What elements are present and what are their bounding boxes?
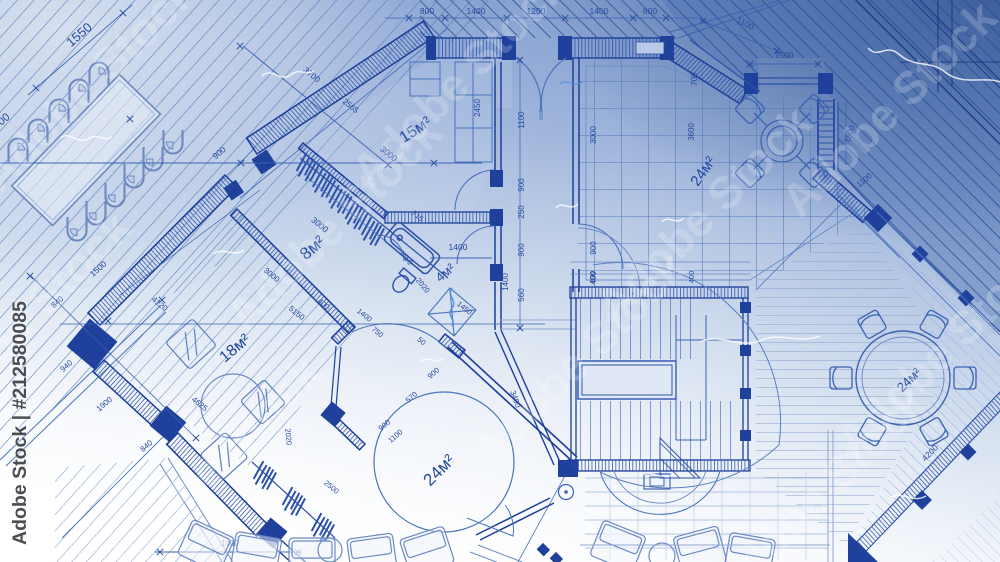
svg-text:1400: 1400 — [467, 6, 486, 16]
svg-text:700: 700 — [690, 72, 699, 86]
svg-text:3600: 3600 — [687, 123, 696, 141]
svg-text:900: 900 — [589, 241, 598, 255]
svg-text:250: 250 — [517, 205, 526, 219]
svg-text:800: 800 — [420, 6, 434, 16]
svg-text:1100: 1100 — [517, 111, 526, 129]
svg-text:2450: 2450 — [473, 99, 482, 117]
svg-text:900: 900 — [517, 178, 526, 192]
svg-text:1400: 1400 — [501, 273, 510, 291]
svg-text:1400: 1400 — [590, 6, 609, 16]
svg-text:1500: 1500 — [775, 50, 794, 60]
svg-text:600: 600 — [588, 271, 597, 284]
svg-text:2020: 2020 — [283, 428, 293, 445]
svg-text:3000: 3000 — [589, 126, 598, 144]
svg-text:1400: 1400 — [449, 242, 468, 252]
svg-text:Adobe Stock | #212580085: Adobe Stock | #212580085 — [9, 301, 31, 545]
svg-text:560: 560 — [517, 288, 526, 302]
svg-text:800: 800 — [643, 6, 657, 16]
svg-text:900: 900 — [517, 243, 526, 257]
